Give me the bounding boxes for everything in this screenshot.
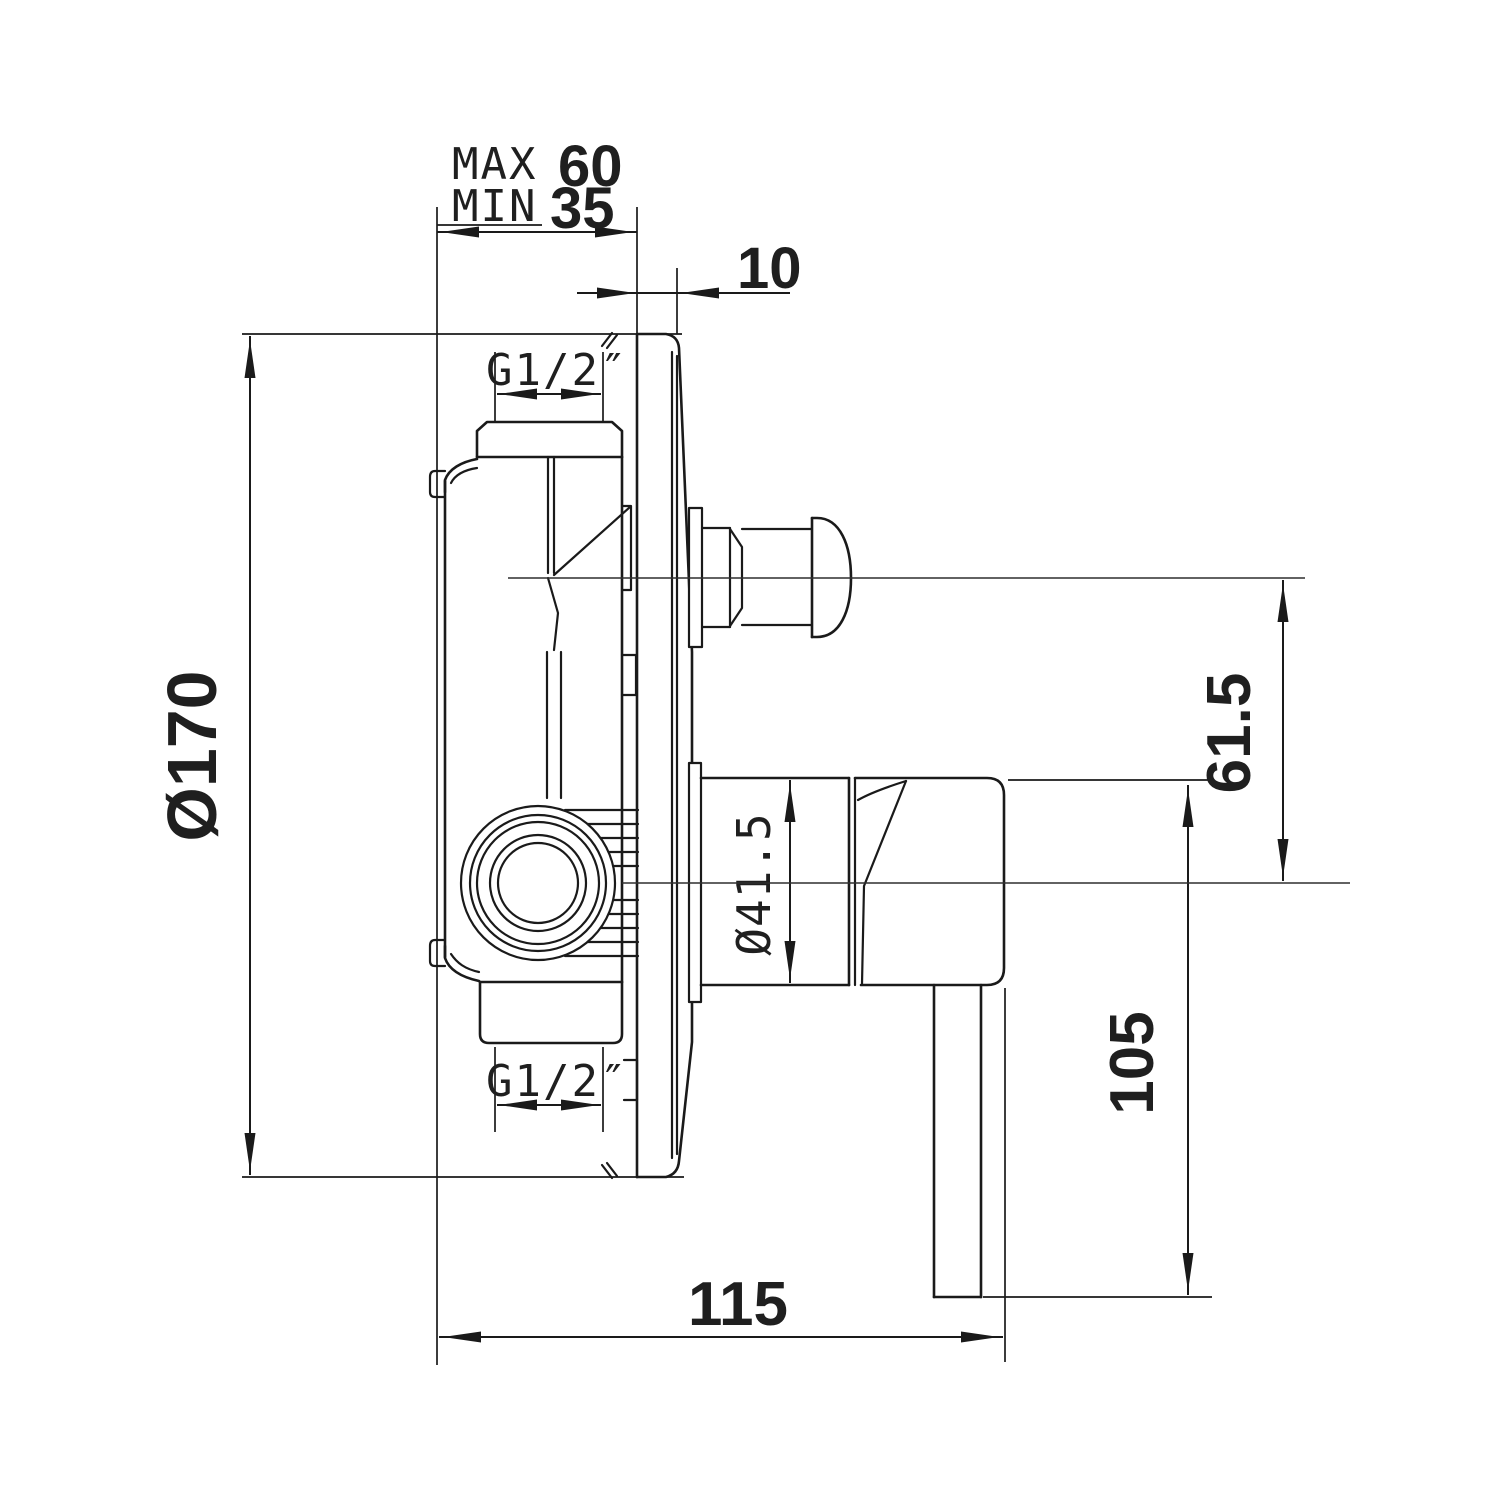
plate-diameter-label: Ø170 (153, 670, 231, 841)
depth-min-label: MIN (452, 181, 537, 232)
cover-plate (637, 334, 692, 1177)
top-thread-label: G1/2″ (486, 345, 628, 396)
shower-valve-section-drawing: MAX 60 MIN 35 10 G1/2″ Ø170 Ø41.5 61.5 (0, 0, 1500, 1500)
projection-value: 115 (688, 1270, 788, 1339)
sleeve-diameter-label: Ø41.5 (727, 812, 781, 955)
cartridge-port-circles (461, 806, 638, 960)
dimension-sleeve-diameter: Ø41.5 (727, 780, 790, 983)
dimension-handle-length: 105 (1098, 785, 1188, 1295)
valve-body (430, 333, 637, 1178)
technical-drawing-page: MAX 60 MIN 35 10 G1/2″ Ø170 Ø41.5 61.5 (0, 0, 1500, 1500)
extension-lines (242, 207, 1212, 1365)
dimension-plate-offset: 10 (577, 236, 802, 301)
dimension-plate-diameter: Ø170 (153, 336, 250, 1175)
dimension-projection: 115 (439, 1270, 1003, 1339)
handle-length-value: 105 (1098, 1011, 1167, 1114)
dimension-wall-depth: MAX 60 MIN 35 (437, 134, 637, 241)
plate-offset-value: 10 (737, 236, 802, 301)
bottom-thread-label: G1/2″ (486, 1056, 628, 1107)
dimension-diverter-height: 61.5 (1195, 580, 1283, 881)
dimension-bottom-thread: G1/2″ (486, 1056, 628, 1107)
diverter-height-value: 61.5 (1195, 673, 1264, 794)
dimension-top-thread: G1/2″ (486, 345, 628, 396)
depth-min-value: 35 (550, 176, 615, 241)
